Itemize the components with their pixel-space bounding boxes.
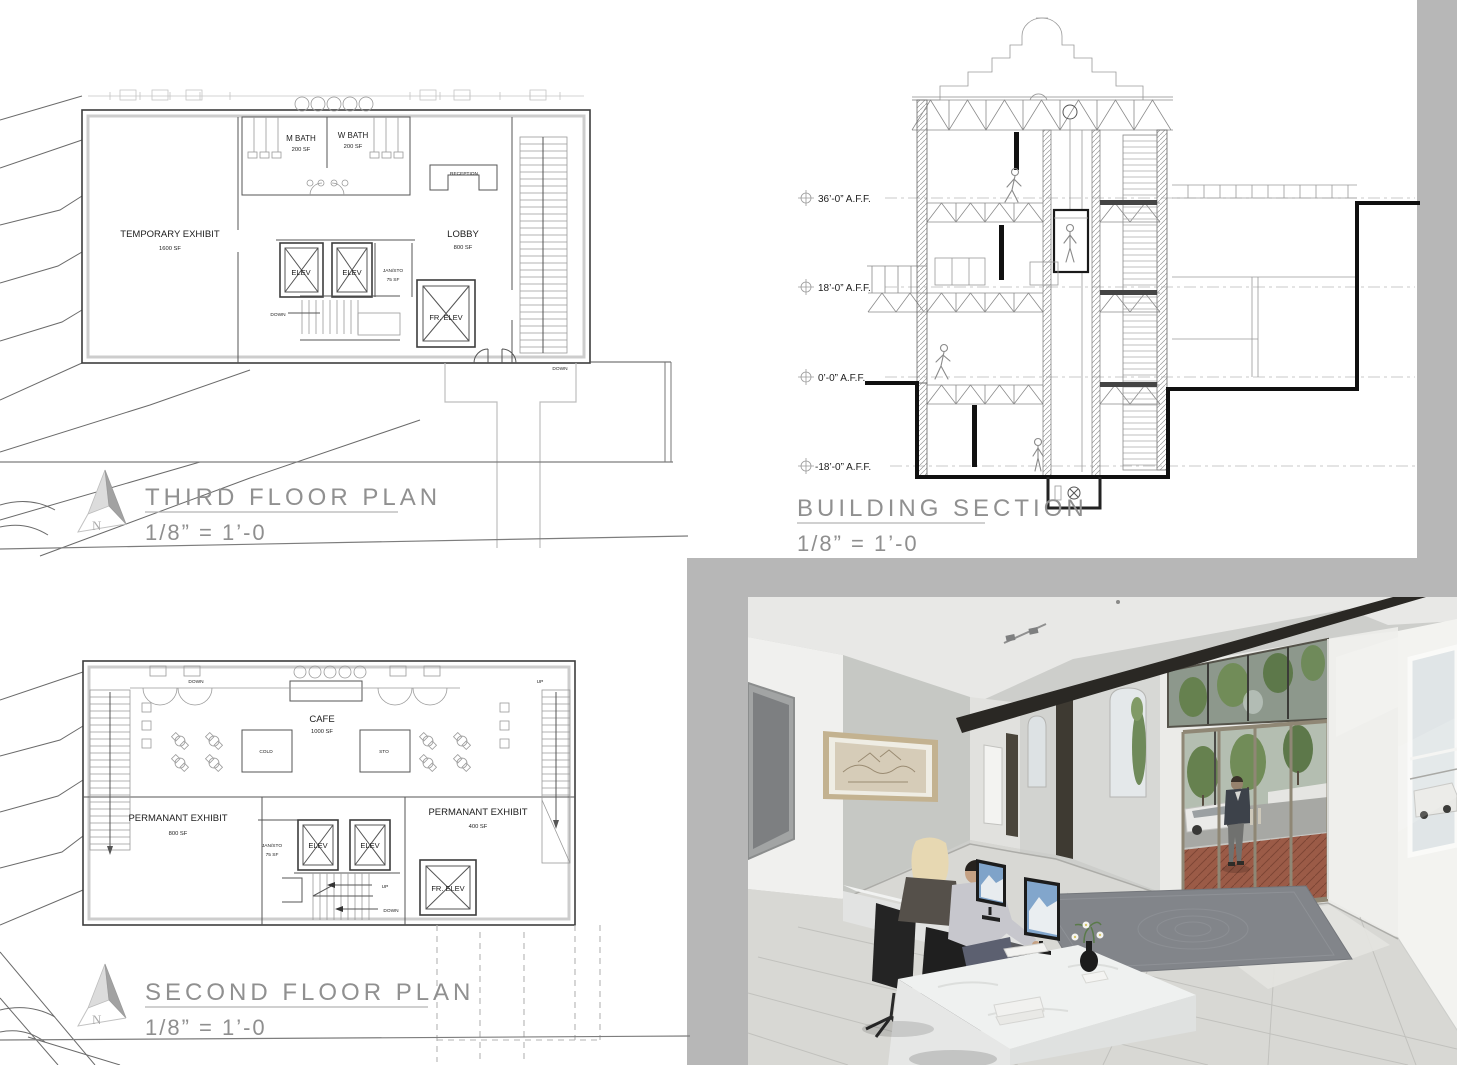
- arched-window-small: [1028, 716, 1046, 787]
- level-label-neg18: -18’-0” A.F.F.: [815, 462, 871, 473]
- room-label-elev-2: ELEV: [360, 841, 379, 850]
- area-label-lobby: 800 SF: [454, 245, 473, 251]
- window-foliage: [1132, 709, 1146, 785]
- area-label-perm-exhibit-right: 400 SF: [469, 824, 488, 830]
- room-label-fr-elev: FR. ELEV: [431, 884, 464, 893]
- room-label-fr-elev: FR. ELEV: [429, 313, 462, 322]
- room-label-elev-1: ELEV: [308, 841, 327, 850]
- room-label-cafe: CAFE: [309, 714, 334, 725]
- door-handle: [1250, 809, 1253, 825]
- second-plan-title: SECOND FLOOR PLAN: [145, 979, 474, 1006]
- room-label-jan-sto: JAN/STO: [383, 268, 403, 274]
- band-line-bottom: [0, 1036, 690, 1040]
- second-plan-scale: 1/8” = 1’-0: [145, 1015, 267, 1040]
- interior-render: [748, 597, 1457, 1065]
- center-stair: [282, 873, 378, 920]
- framed-artwork: [823, 731, 938, 802]
- curtain-openings: [130, 688, 460, 705]
- third-plan-scale: 1/8” = 1’-0: [145, 520, 267, 545]
- right-stair: [542, 690, 570, 863]
- room-label-reception: RECEPTION: [450, 171, 479, 177]
- roof-truss: [912, 97, 1173, 130]
- room-label-temporary-exhibit: TEMPORARY EXHIBIT: [120, 229, 220, 240]
- area-label-jan-sto: 75 SF: [387, 277, 400, 283]
- right-wall: [1157, 130, 1167, 470]
- room-label-w-bath: W BATH: [338, 131, 369, 140]
- parapet-details: [1030, 18, 1048, 100]
- reception-desk: [430, 165, 497, 190]
- second-floor-plan: CAFE 1000 SF COLD STO PERMANANT EXHIBIT …: [0, 661, 690, 1065]
- hallway-door: [984, 745, 1002, 825]
- wall-display: [748, 683, 794, 859]
- level-label-18: 18’-0” A.F.F.: [818, 283, 871, 294]
- room-label-m-bath: M BATH: [286, 134, 316, 143]
- steel-column: [1056, 689, 1073, 859]
- interior-elements: [935, 132, 1058, 467]
- room-label-elev-1: ELEV: [291, 268, 310, 277]
- right-stair: [512, 117, 567, 363]
- north-letter: N: [92, 518, 102, 533]
- area-label-temporary-exhibit: 1600 SF: [159, 246, 181, 252]
- room-label-sto: STO: [379, 749, 389, 755]
- area-label-w-bath: 200 SF: [344, 144, 363, 150]
- render-image: [748, 597, 1457, 1065]
- level-label-0: 0’-0” A.F.F.: [818, 373, 865, 384]
- elevator-shaft: [1043, 105, 1100, 477]
- stair-tower: [1100, 135, 1157, 470]
- area-label-m-bath: 200 SF: [292, 147, 311, 153]
- area-label-cafe: 1000 SF: [311, 729, 333, 735]
- north-letter: N: [92, 1012, 102, 1027]
- context-sketch-lines: [0, 672, 120, 1065]
- annotation-down-exit: DOWN: [552, 366, 568, 372]
- room-label-jan-sto: JAN/STO: [262, 843, 282, 849]
- presentation-board: TEMPORARY EXHIBIT 1600 SF M BATH 200 SF …: [0, 0, 1457, 1065]
- bathrooms: [242, 117, 410, 195]
- annotation-down-stair: DOWN: [383, 908, 399, 914]
- window-foliage: [1131, 697, 1143, 721]
- right-annex: [1172, 185, 1357, 377]
- room-label-cold: COLD: [259, 749, 273, 755]
- left-wall: [917, 100, 927, 383]
- center-stair: [288, 296, 400, 340]
- elevator-cab: [1054, 210, 1088, 272]
- annotation-down-stair: DOWN: [270, 312, 286, 318]
- annotation-up-right: UP: [537, 679, 544, 685]
- roof-skylights: [295, 97, 373, 111]
- annotation-down-left: DOWN: [188, 679, 204, 685]
- corridor-stub: [445, 362, 671, 548]
- section-scale: 1/8” = 1’-0: [797, 531, 919, 556]
- area-label-perm-exhibit-left: 800 SF: [169, 831, 188, 837]
- left-stair: [90, 690, 130, 855]
- room-label-perm-exhibit-right: PERMANANT EXHIBIT: [428, 807, 527, 818]
- chair-shadow: [862, 1021, 934, 1037]
- hallway-door-frame: [1006, 733, 1018, 837]
- roof-fixtures: [88, 90, 584, 100]
- room-label-lobby: LOBBY: [447, 229, 479, 240]
- annotation-up-stair: UP: [382, 884, 389, 890]
- third-plan-title: THIRD FLOOR PLAN: [145, 484, 441, 511]
- area-label-jan-sto: 75 SF: [266, 852, 279, 858]
- room-label-perm-exhibit-left: PERMANANT EXHIBIT: [128, 813, 227, 824]
- third-floor-plan: TEMPORARY EXHIBIT 1600 SF M BATH 200 SF …: [0, 90, 688, 556]
- building-section: 36’-0” A.F.F. 18’-0” A.F.F. 0’-0” A.F.F.…: [797, 18, 1418, 556]
- section-title: BUILDING SECTION: [797, 495, 1088, 522]
- band-line-bottom: [0, 536, 688, 549]
- elevation-datums: 36’-0” A.F.F. 18’-0” A.F.F. 0’-0” A.F.F.…: [798, 190, 1415, 474]
- door-handle: [1258, 808, 1261, 824]
- level-label-36: 36’-0” A.F.F.: [818, 194, 871, 205]
- room-label-elev-2: ELEV: [342, 268, 361, 277]
- stepped-parapet: [912, 18, 1143, 100]
